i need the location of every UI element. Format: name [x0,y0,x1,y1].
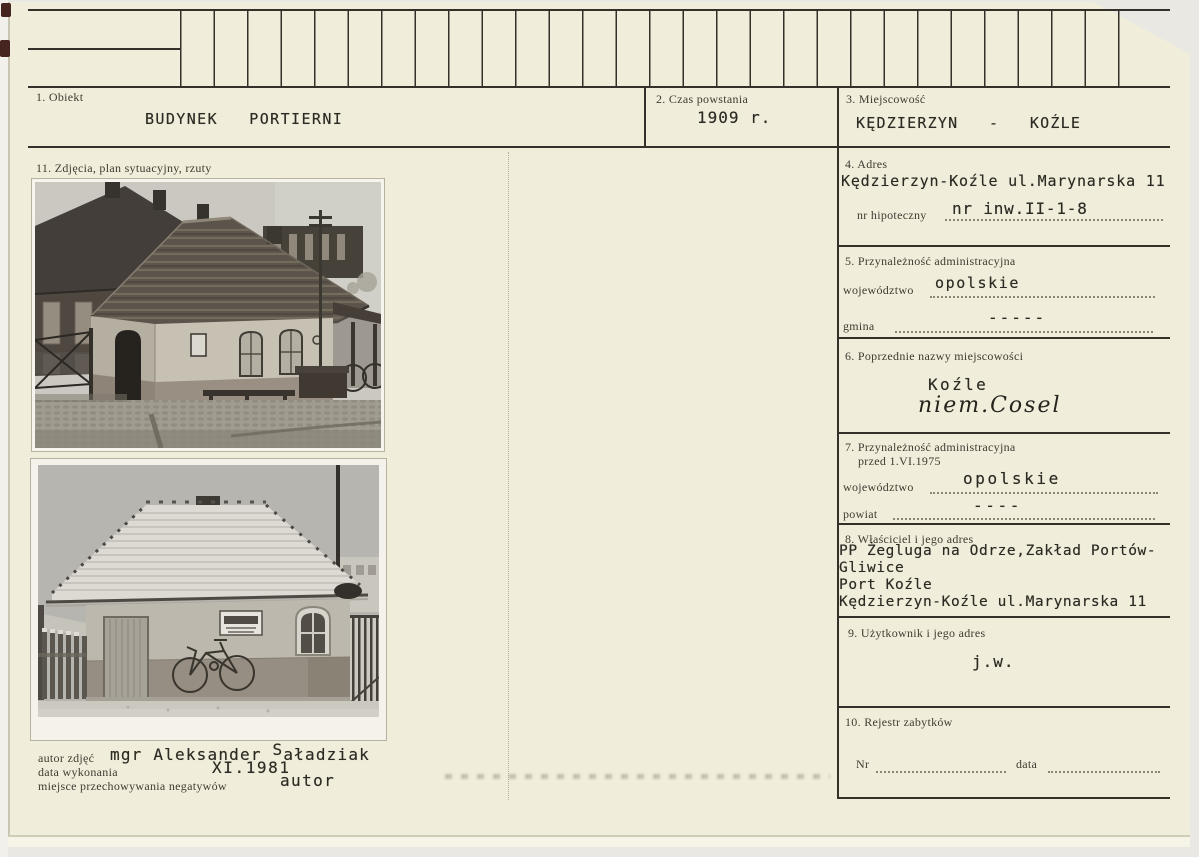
gmina-dotted-line [895,331,1153,333]
powiat-value: ---- [973,496,1022,515]
address-value: Kędzierzyn-Koźle ul.Marynarska 11 [841,172,1165,190]
owner-line-4: Kędzierzyn-Koźle ul.Marynarska 11 [839,594,1147,610]
section3-label: 3. Miejscowość [846,92,926,107]
divider-s7-s8 [837,523,1170,525]
hipoteczny-label: nr hipoteczny [857,208,927,223]
section9-label: 9. Użytkownik i jego adres [848,626,985,641]
owner-line-2: Gliwice [839,560,904,576]
creation-date: 1909 r. [697,108,771,127]
s5-wojewodztwo-value: opolskie [935,274,1020,292]
hipoteczny-dotted-line [945,219,1163,221]
object-name: BUDYNEK PORTIERNI [145,110,343,128]
show-through-marks [445,774,830,779]
former-name-typed: Koźle [928,375,988,394]
town-name: KĘDZIERZYN - KOŹLE [856,114,1081,132]
data-wykonania-value: XI.1981 [212,758,291,777]
photo-gatehouse-winter [31,459,386,740]
scanned-heritage-card: { "card": { "section1": {"label": "1. Ob… [0,0,1199,857]
divider-s9-s10 [837,706,1170,708]
right-column-bottom-rule [837,797,1170,799]
hipoteczny-value: nr inw.II-1-8 [952,199,1088,218]
fold-crease [508,152,509,800]
divider-s5-s6 [837,337,1170,339]
photo2-svg [38,465,379,717]
autor-label: autor zdjęć [38,751,94,766]
divider-s8-s9 [837,616,1170,618]
section1-label: 1. Obiekt [36,90,83,105]
s5-wojewodztwo-dotted-line [930,296,1155,298]
photo1-svg [35,182,381,448]
owner-line-1: PP Żegluga na Odrze,Zakład Portów- [839,543,1156,559]
powiat-dotted-line [893,518,1155,520]
section7-label-line2: przed 1.VI.1975 [858,454,941,469]
section2-label: 2. Czas powstania [656,92,748,107]
autor-value-capital: S [273,740,284,759]
miejsce-label: miejsce przechowywania negatywów [38,779,227,794]
powiat-label: powiat [843,507,877,522]
divider-s1-s2 [644,88,646,146]
divider-s4-s5 [837,245,1170,247]
data-wykonania-label: data wykonania [38,765,118,780]
right-column-border [837,88,839,797]
gmina-label: gmina [843,319,875,334]
rejestr-data-label: data [1016,757,1037,772]
header-tick-strip [180,10,1142,86]
rejestr-nr-label: Nr [856,757,869,772]
section11-label: 11. Zdjęcia, plan sytuacyjny, rzuty [36,161,212,176]
divider-s6-s7 [837,432,1170,434]
section5-label: 5. Przynależność administracyjna [845,254,1016,269]
section7-label-line1: 7. Przynależność administracyjna [845,440,1016,455]
scan-left-margin [0,0,8,857]
binding-mark-lower [0,40,10,57]
s7-wojewodztwo-value: opolskie [963,469,1061,488]
card-left-edge [8,2,10,836]
section6-label: 6. Poprzednie nazwy miejscowości [845,349,1023,364]
binding-mark-top [1,3,11,17]
user-value: j.w. [972,652,1015,671]
section4-label: 4. Adres [845,157,887,172]
header-bottom-rule [28,86,1170,88]
row1-bottom-rule [28,146,1170,148]
photo-gatehouse-autumn [32,179,384,451]
miejsce-value: autor [280,771,335,790]
s7-wojewodztwo-dotted-line [930,492,1158,494]
former-name-handwritten: niem.Cosel [918,393,1062,418]
s5-wojewodztwo-label: województwo [843,283,914,298]
header-half-rule [28,48,180,50]
section10-label: 10. Rejestr zabytków [845,715,953,730]
rejestr-data-dotted-line [1048,771,1160,773]
rejestr-nr-dotted-line [876,771,1006,773]
gmina-value: ----- [988,308,1046,327]
s7-wojewodztwo-label: województwo [843,480,914,495]
owner-line-3: Port Koźle [839,577,932,593]
autor-value-rest: aładziak [283,745,370,764]
card-bottom-edge [8,835,1190,837]
